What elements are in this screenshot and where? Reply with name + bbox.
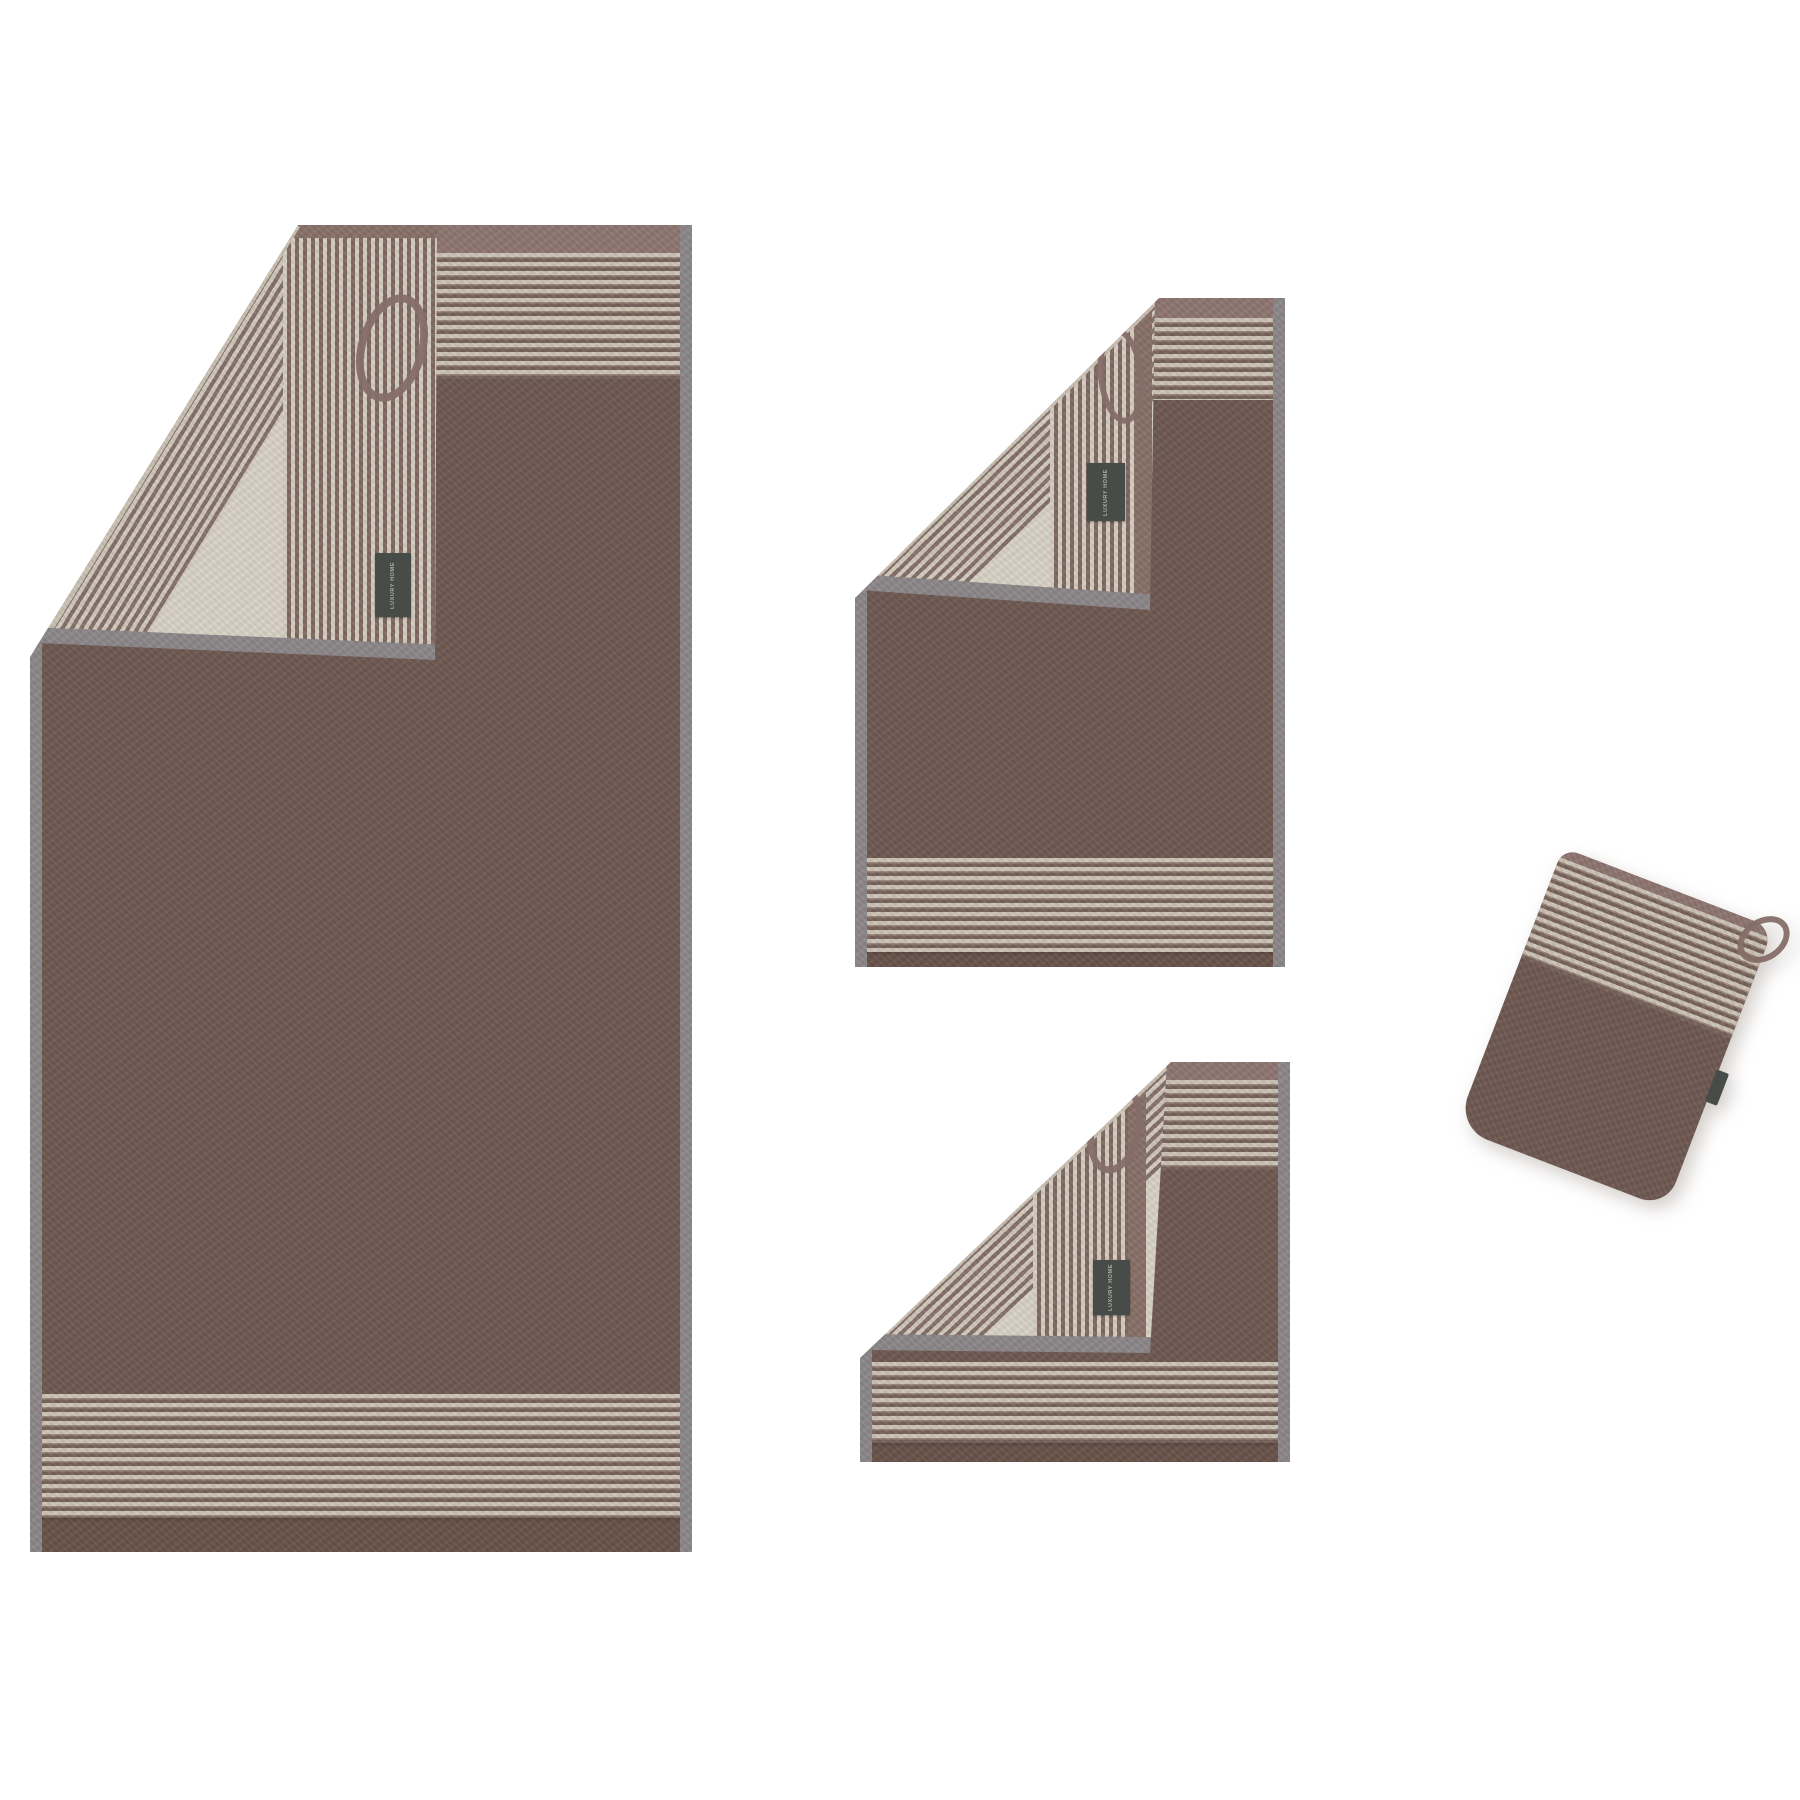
brand-label-text: LUXURY HOME bbox=[390, 562, 397, 609]
wash-mitt-body bbox=[1456, 848, 1774, 1209]
side-hem-left bbox=[30, 635, 42, 1552]
brand-label-text: LUXURY HOME bbox=[1108, 1264, 1115, 1311]
brand-label: LUXURY HOME bbox=[1087, 463, 1125, 521]
folded-corner: LUXURY HOME bbox=[30, 225, 440, 665]
bottom-stripe-band bbox=[867, 858, 1273, 952]
brand-label-text: LUXURY HOME bbox=[1103, 469, 1110, 516]
mitt-front-face bbox=[1456, 848, 1774, 1209]
top-trim bbox=[855, 298, 1285, 318]
side-hem-right bbox=[680, 225, 692, 1552]
hand-towel: LUXURY HOME bbox=[855, 298, 1285, 967]
side-hem-right bbox=[1273, 298, 1285, 967]
side-hem-right bbox=[1278, 1062, 1290, 1462]
bottom-hem bbox=[860, 1443, 1290, 1462]
wash-mitt bbox=[1452, 838, 1782, 1223]
bottom-hem bbox=[855, 952, 1285, 967]
brand-label: LUXURY HOME bbox=[375, 553, 411, 617]
top-trim bbox=[860, 1062, 1290, 1080]
top-stripe-band bbox=[855, 318, 1273, 400]
fold-stripe-band bbox=[1033, 1062, 1128, 1362]
bottom-stripe-band bbox=[872, 1362, 1278, 1443]
side-hem-left bbox=[855, 588, 867, 967]
side-hem-left bbox=[860, 1347, 872, 1462]
fold-stripe-band bbox=[283, 225, 437, 665]
bath-towel: LUXURY HOME bbox=[30, 225, 692, 1552]
fold-top-trim bbox=[260, 225, 440, 238]
guest-towel: LUXURY HOME bbox=[860, 1062, 1290, 1462]
bottom-hem bbox=[30, 1518, 692, 1552]
brand-label: LUXURY HOME bbox=[1093, 1260, 1130, 1315]
top-stripe-band bbox=[860, 1080, 1278, 1170]
bottom-stripe-band bbox=[42, 1394, 680, 1518]
